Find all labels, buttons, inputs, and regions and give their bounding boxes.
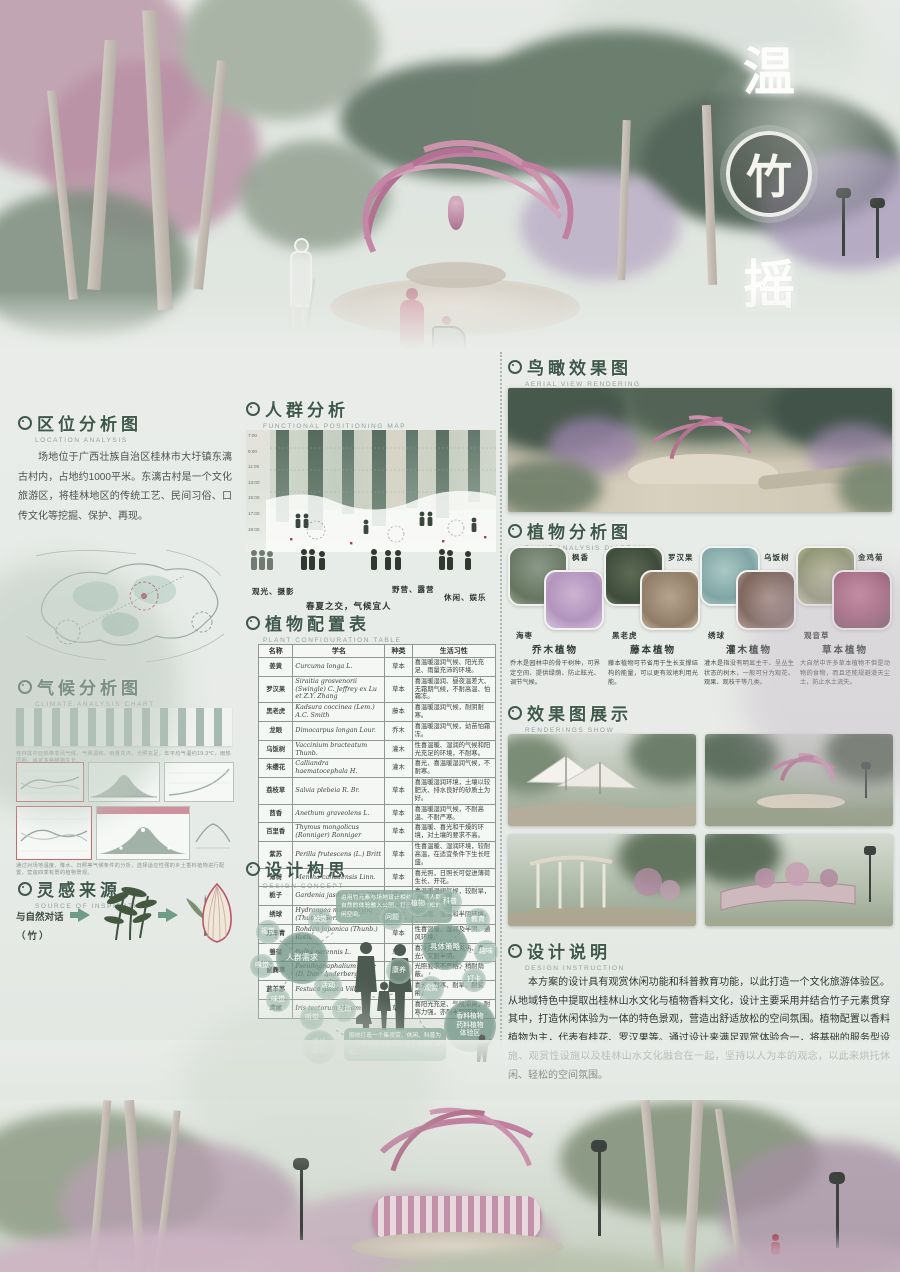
plant-photo-heilaohu: [640, 570, 700, 630]
plant-label: 海枣: [516, 630, 533, 641]
concept-bubble: 具体策略: [422, 924, 468, 970]
plant-label: 乌饭树: [764, 552, 790, 563]
section-subheading: PLANT CONFIGURATION TABLE: [263, 637, 401, 644]
section-flower-icon: [246, 862, 260, 876]
crowd-diagram: 7:009:00 11:0013:00 15:0017:00 19:00: [246, 430, 496, 552]
section-heading: 人群分析: [265, 396, 349, 421]
table-row: 姜黄Curcuma longa L.草本喜温暖湿润气候、阳光充足、雨量充沛的环境…: [259, 658, 496, 677]
section-aerial: 鸟瞰效果图 AERIAL VIEW RENDERING: [508, 354, 641, 388]
table-row: 龙眼Dimocarpus longan Lour.乔木喜温暖湿润气候，幼苗怕霜冻…: [259, 722, 496, 741]
section-heading: 鸟瞰效果图: [527, 354, 632, 379]
hero-rendering: 温 竹 摇: [0, 0, 900, 358]
plant-label: 枫香: [572, 552, 589, 563]
hero-fade: [0, 290, 900, 358]
climate-chart-humidity: [96, 806, 190, 860]
section-heading: 区位分析图: [37, 410, 142, 435]
design-poster: 温 竹 摇 区位分析图 LOCATION ANALYSIS 场地位于广西壮族自治…: [0, 0, 900, 1272]
title-char-1: 温: [743, 30, 795, 105]
section-flower-icon: [246, 616, 260, 630]
rendering-canopy: [508, 734, 696, 826]
plant-category-tree: 乔木植物 乔木是园林中的骨干树种，可界定空间、提供绿荫、防止眩光、调节气候。: [510, 642, 600, 688]
concept-bubble: 触觉: [308, 908, 332, 932]
section-concept: 设计构思 DESIGN CONCEPT: [246, 856, 349, 890]
table-row: 百里香Thymus mongolicus (Ronniger) Ronniger…: [259, 823, 496, 842]
concept-bubble: 打卡: [462, 968, 486, 992]
plant-category-vine: 藤本植物 藤本植物可节省用于生长支撑结构的能量，可以更有效地利用光能。: [608, 642, 698, 688]
section-heading: 设计说明: [527, 938, 611, 963]
section-flower-icon: [508, 944, 522, 958]
section-location: 区位分析图 LOCATION ANALYSIS: [18, 410, 142, 444]
table-header-row: 名称 学名 种类 生活习性: [259, 645, 496, 658]
plant-label: 罗汉果: [668, 552, 694, 563]
section-flower-icon: [508, 706, 522, 720]
arrow-icon: [166, 908, 178, 922]
section-plant-table: 植物配置表 PLANT CONFIGURATION TABLE: [246, 610, 401, 644]
section-flower-icon: [246, 402, 260, 416]
section-flower-icon: [508, 360, 522, 374]
inspiration-label: 与自然对话 （竹）: [16, 908, 70, 946]
section-subheading: AERIAL VIEW RENDERING: [525, 381, 641, 388]
aerial-rendering: [508, 388, 892, 512]
climate-note-2: 通过对场地温度、降水、日照等气候条件的分析，选择适应性强的乡土香料植物进行配置，…: [16, 862, 232, 876]
section-subheading: RENDERINGS SHOW: [525, 727, 632, 734]
crowd-silhouettes: [246, 548, 496, 584]
table-row: 茴香Anethum graveolens L.草本喜温暖湿润气候，不耐高温、不耐…: [259, 804, 496, 823]
plant-label: 绣球: [708, 630, 725, 641]
collage-tint: [180, 1000, 440, 1160]
concept-bubble: 问题: [380, 906, 404, 930]
concept-bubble: 观赏: [418, 976, 444, 1002]
section-heading: 效果图展示: [527, 700, 632, 725]
table-row: 罗汉果Siraitia grosvenorii (Swingle) C. Jef…: [259, 676, 496, 703]
concept-bubble: 视觉: [256, 920, 280, 944]
shell-form-icon: [200, 882, 234, 944]
crowd-label-3: 野营、露营: [392, 584, 435, 595]
rendering-pergola: [508, 834, 696, 926]
title-badge-bamboo: 竹: [726, 131, 812, 217]
concept-bubble: 科普: [438, 890, 462, 914]
concept-bubble: 康养: [386, 958, 412, 984]
table-row: 荔枝草Salvia plebeia R. Br.草本喜温暖湿润环境，土壤以较肥沃…: [259, 778, 496, 805]
section-heading: 植物配置表: [265, 610, 370, 635]
rendering-planter: [705, 834, 893, 926]
concept-bubble: 植物: [406, 892, 430, 916]
column-divider: [500, 352, 502, 1044]
table-row: 朱缨花Calliandra haematocephala H.灌木喜光、喜温暖湿…: [259, 759, 496, 778]
section-heading: 植物分析图: [527, 518, 632, 543]
climate-chart-trend: [194, 812, 232, 852]
section-description: 设计说明 DESIGN INSTRUCTION: [508, 938, 625, 972]
section-subheading: FUNCTIONAL POSITIONING MAP: [263, 423, 406, 430]
section-crowd: 人群分析 FUNCTIONAL POSITIONING MAP: [246, 396, 406, 430]
plant-photo-haizao: [544, 570, 604, 630]
bottom-rendering: [0, 1100, 900, 1272]
section-flower-icon: [18, 882, 32, 896]
section-subheading: LOCATION ANALYSIS: [35, 437, 142, 444]
section-flower-icon: [508, 524, 522, 538]
concept-bubble: 活动: [314, 972, 342, 1000]
location-paragraph: 场地位于广西壮族自治区桂林市大圩镇东漓古村内，占地约1000平米。东漓古村是一个…: [18, 448, 232, 526]
table-row: 乌饭树Vaccinium bracteatum Thunb.灌木性喜温暖、湿润的…: [259, 740, 496, 759]
concept-bubble: 嗅觉: [250, 954, 274, 978]
arrow-icon: [78, 908, 90, 922]
section-heading: 设计构思: [265, 856, 349, 881]
concept-bubble: 教育: [466, 908, 490, 932]
section-subheading: DESIGN INSTRUCTION: [525, 965, 625, 972]
concept-bubble: 趣味: [474, 940, 498, 964]
crowd-label-1: 观光、摄影: [252, 586, 295, 597]
table-row: 黑老虎Kadsura coccinea (Lem.) A.C. Smith藤本喜…: [259, 703, 496, 722]
crowd-label-4: 休闲、娱乐: [444, 592, 487, 603]
bamboo-clump-icon: [96, 880, 162, 946]
bottom-fade: [0, 1040, 900, 1110]
plant-label: 黑老虎: [612, 630, 638, 641]
poster-title: 温 竹 摇: [724, 30, 814, 318]
section-flower-icon: [18, 416, 32, 430]
section-renderings: 效果图展示 RENDERINGS SHOW: [508, 700, 632, 734]
climate-chart-sun: [164, 762, 234, 802]
